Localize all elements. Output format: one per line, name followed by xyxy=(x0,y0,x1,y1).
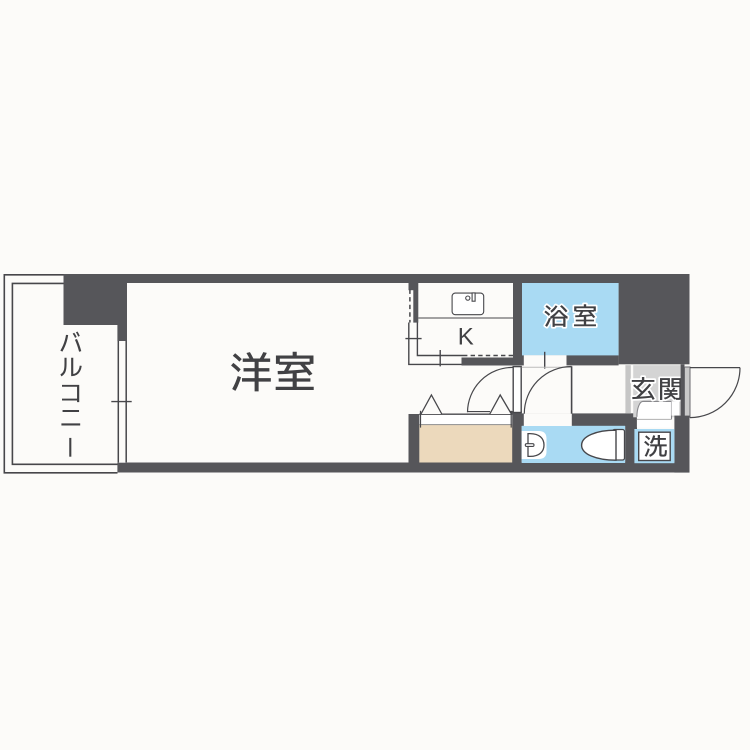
svg-text:K: K xyxy=(458,324,474,351)
